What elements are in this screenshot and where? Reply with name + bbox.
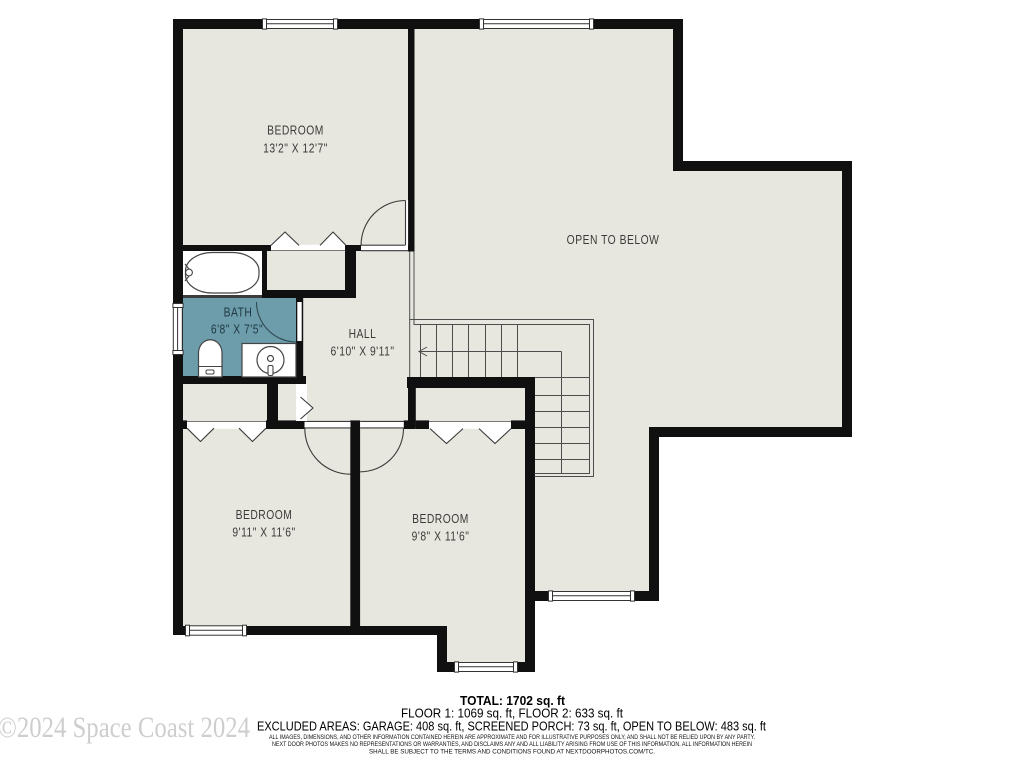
svg-text:ALL IMAGES, DIMENSIONS, AND OT: ALL IMAGES, DIMENSIONS, AND OTHER INFORM…	[269, 734, 755, 741]
svg-text:9'8" X 11'6": 9'8" X 11'6"	[412, 531, 470, 544]
svg-text:HALL: HALL	[349, 328, 377, 341]
svg-text:OPEN TO BELOW: OPEN TO BELOW	[567, 234, 660, 247]
svg-text:BEDROOM: BEDROOM	[412, 513, 469, 526]
svg-text:NEXT DOOR PHOTOS MAKES NO REPR: NEXT DOOR PHOTOS MAKES NO REPRESENTATION…	[272, 741, 752, 748]
svg-text:EXCLUDED AREAS: GARAGE: 408 sq: EXCLUDED AREAS: GARAGE: 408 sq. ft, SCRE…	[257, 720, 766, 734]
svg-text:SHALL BE SUBJECT TO THE TERMS: SHALL BE SUBJECT TO THE TERMS AND CONDIT…	[369, 749, 655, 756]
svg-text:TOTAL: 1702 sq. ft: TOTAL: 1702 sq. ft	[460, 693, 566, 708]
svg-text:6'8" X 7'5": 6'8" X 7'5"	[211, 324, 263, 337]
svg-text:BEDROOM: BEDROOM	[267, 125, 324, 138]
svg-text:BATH: BATH	[224, 307, 253, 320]
svg-text:6'10" X 9'11": 6'10" X 9'11"	[331, 346, 395, 359]
svg-text:13'2" X 12'7": 13'2" X 12'7"	[263, 143, 328, 156]
svg-text:BEDROOM: BEDROOM	[236, 509, 293, 522]
svg-text:FLOOR 1: 1069 sq. ft, FLOOR 2:: FLOOR 1: 1069 sq. ft, FLOOR 2: 633 sq. f…	[401, 707, 623, 721]
svg-text:©2024 Space Coast 2024: ©2024 Space Coast 2024	[0, 711, 250, 744]
svg-text:9'11" X 11'6": 9'11" X 11'6"	[232, 527, 295, 540]
